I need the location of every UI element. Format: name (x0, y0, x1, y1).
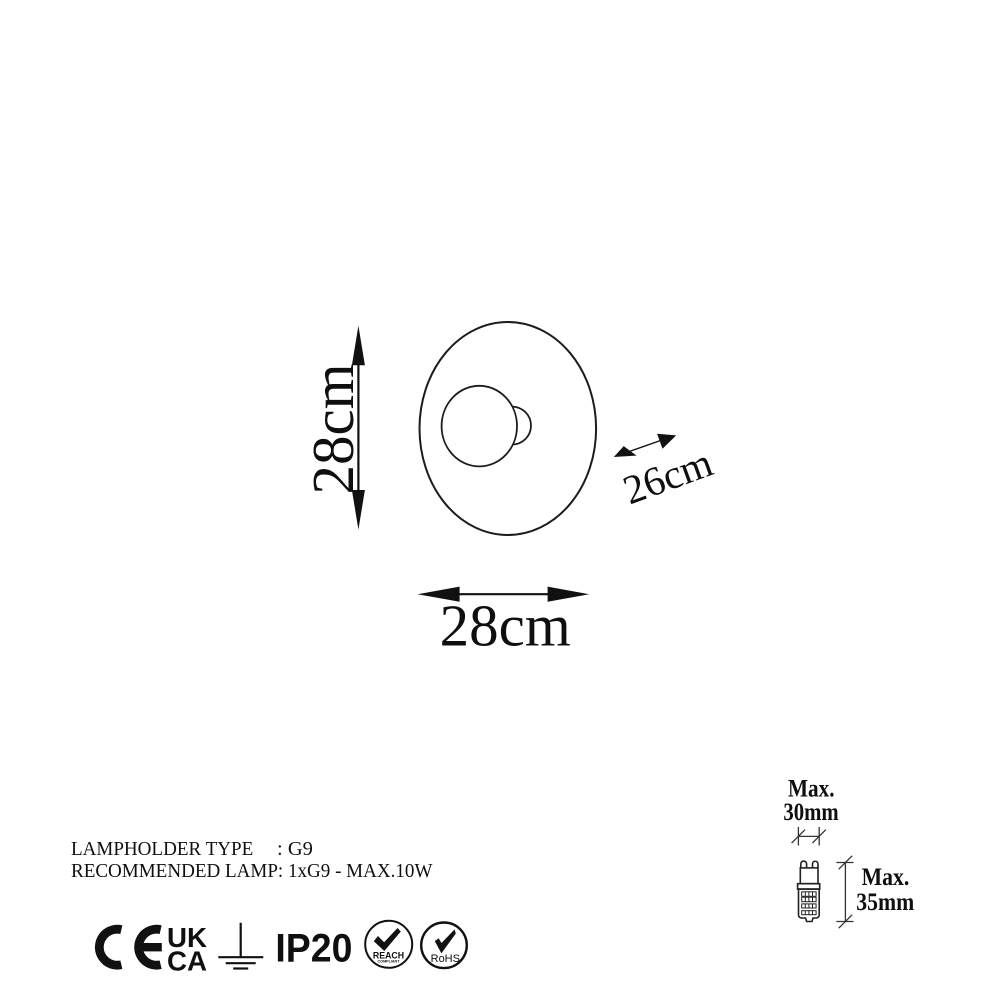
svg-text:RECOMMENDED LAMP: 1xG9 - MAX.1: RECOMMENDED LAMP: 1xG9 - MAX.10W (71, 859, 433, 882)
svg-text:Max.: Max. (862, 863, 910, 891)
svg-text:35mm: 35mm (856, 889, 914, 917)
svg-text:: G9: : G9 (277, 838, 313, 860)
svg-text:RoHS: RoHS (431, 953, 460, 965)
svg-text:REACH: REACH (373, 950, 404, 960)
svg-text:30mm: 30mm (783, 798, 838, 825)
svg-text:CA: CA (167, 945, 207, 976)
svg-text:LAMPHOLDER TYPE: LAMPHOLDER TYPE (71, 837, 253, 860)
svg-text:IP20: IP20 (275, 927, 352, 971)
svg-text:COMPLIANT: COMPLIANT (378, 959, 401, 963)
svg-text:28cm: 28cm (440, 592, 571, 658)
svg-text:28cm: 28cm (300, 363, 366, 494)
